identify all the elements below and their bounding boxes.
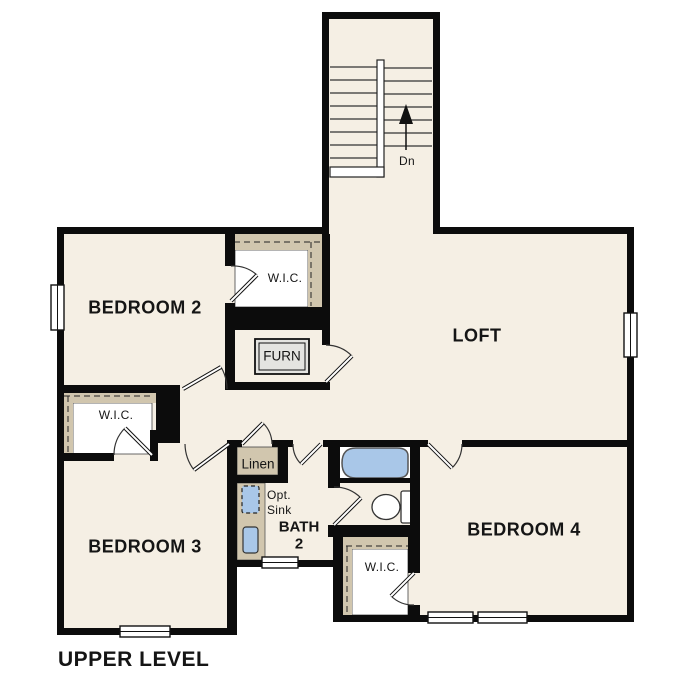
label-opt-sink-line1: Opt. (267, 488, 291, 502)
floor-plan-drawing (0, 0, 687, 687)
wic2-shelf-shading-right (308, 250, 322, 307)
stairs-direction-label: Dn (399, 154, 415, 168)
wic4-floor (352, 549, 408, 615)
stair-landing-edge (330, 167, 384, 177)
stair-railing (377, 60, 384, 177)
optional-sink (242, 486, 259, 513)
floor-plan-upper-level: BEDROOM 2 W.I.C. FURN LOFT W.I.C. BEDROO… (0, 0, 687, 687)
wic4-shelf-shading-top (343, 537, 408, 549)
room-label-bath-line2: 2 (295, 536, 303, 553)
label-opt-sink-line2: Sink (267, 503, 292, 517)
room-label-bedroom4: BEDROOM 4 (467, 520, 581, 541)
room-label-wic4: W.I.C. (365, 560, 399, 574)
room-label-bedroom2: BEDROOM 2 (88, 298, 202, 319)
toilet (372, 491, 414, 523)
room-label-bedroom3: BEDROOM 3 (88, 537, 202, 558)
bathtub (342, 448, 408, 478)
room-label-furnace: FURN (263, 349, 301, 364)
room-label-wic3: W.I.C. (99, 408, 133, 422)
room-label-loft: LOFT (453, 326, 502, 347)
room-label-linen: Linen (241, 457, 274, 472)
room-label-bath-line1: BATH (279, 519, 320, 536)
sink (243, 527, 258, 553)
plan-title: UPPER LEVEL (58, 648, 209, 672)
room-label-wic2: W.I.C. (268, 271, 302, 285)
